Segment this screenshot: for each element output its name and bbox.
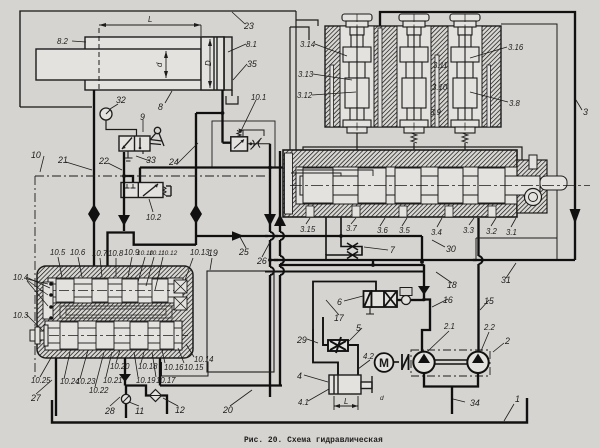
svg-text:3.2: 3.2 xyxy=(486,227,498,236)
svg-text:3.13: 3.13 xyxy=(298,70,314,79)
svg-text:10.17: 10.17 xyxy=(156,376,176,385)
svg-text:10.15: 10.15 xyxy=(184,363,204,372)
svg-text:12: 12 xyxy=(175,405,185,415)
svg-text:d: d xyxy=(155,62,164,67)
svg-text:D: D xyxy=(204,60,213,66)
svg-text:3.3: 3.3 xyxy=(463,226,475,235)
svg-text:3.6: 3.6 xyxy=(377,226,389,235)
svg-text:3.12: 3.12 xyxy=(297,91,313,100)
svg-text:3.11: 3.11 xyxy=(433,61,448,70)
svg-text:8.2: 8.2 xyxy=(57,37,69,46)
svg-text:3.5: 3.5 xyxy=(399,226,411,235)
svg-text:10.16: 10.16 xyxy=(164,363,184,372)
svg-text:10.3: 10.3 xyxy=(13,311,29,320)
svg-text:3.4: 3.4 xyxy=(431,228,443,237)
svg-text:23: 23 xyxy=(243,21,254,31)
svg-text:М: М xyxy=(379,356,389,370)
svg-text:28: 28 xyxy=(104,406,115,416)
svg-text:24: 24 xyxy=(168,157,179,167)
svg-text:21: 21 xyxy=(57,155,68,165)
svg-text:3.10: 3.10 xyxy=(432,83,448,92)
svg-text:Рис. 20. Схема гидравлическая: Рис. 20. Схема гидравлическая xyxy=(244,436,383,445)
svg-text:1: 1 xyxy=(515,394,520,404)
svg-text:4: 4 xyxy=(297,371,302,381)
svg-text:9: 9 xyxy=(140,112,145,122)
svg-text:8: 8 xyxy=(158,102,163,112)
svg-text:32: 32 xyxy=(116,95,126,105)
svg-text:20: 20 xyxy=(222,405,233,415)
svg-text:35: 35 xyxy=(247,59,257,69)
svg-text:10.22: 10.22 xyxy=(89,386,109,395)
svg-text:10.20: 10.20 xyxy=(110,362,130,371)
svg-text:10.21: 10.21 xyxy=(103,376,123,385)
svg-text:18: 18 xyxy=(447,280,457,290)
svg-text:L: L xyxy=(148,15,152,24)
svg-text:3.7: 3.7 xyxy=(346,224,358,233)
svg-text:10.2: 10.2 xyxy=(146,213,162,222)
svg-text:3.1: 3.1 xyxy=(506,228,517,237)
svg-text:2.2: 2.2 xyxy=(483,323,496,332)
svg-text:10.8: 10.8 xyxy=(108,249,124,258)
svg-text:L: L xyxy=(344,397,348,406)
svg-text:10: 10 xyxy=(31,150,41,160)
svg-text:10.12: 10.12 xyxy=(161,250,178,257)
svg-text:16: 16 xyxy=(443,295,453,305)
svg-text:3.9: 3.9 xyxy=(430,108,442,117)
svg-text:4.1: 4.1 xyxy=(298,398,309,407)
svg-text:31: 31 xyxy=(501,275,511,285)
svg-text:4.2: 4.2 xyxy=(363,352,375,361)
svg-text:27: 27 xyxy=(30,393,42,403)
svg-text:2: 2 xyxy=(504,336,510,346)
svg-text:3.15: 3.15 xyxy=(300,225,316,234)
svg-text:25: 25 xyxy=(238,247,249,257)
svg-text:8.1: 8.1 xyxy=(246,40,257,49)
svg-text:3.8: 3.8 xyxy=(509,99,521,108)
svg-text:29: 29 xyxy=(296,335,307,345)
svg-text:33: 33 xyxy=(146,155,156,165)
svg-text:d: d xyxy=(380,395,384,402)
svg-text:17: 17 xyxy=(334,313,345,323)
svg-text:11: 11 xyxy=(135,406,144,416)
svg-text:3.14: 3.14 xyxy=(300,40,316,49)
svg-text:10.5: 10.5 xyxy=(50,248,66,257)
svg-text:19: 19 xyxy=(208,248,218,258)
svg-text:10.14: 10.14 xyxy=(194,355,214,364)
svg-text:6: 6 xyxy=(337,297,342,307)
svg-text:10.23: 10.23 xyxy=(76,377,96,386)
svg-text:2.1: 2.1 xyxy=(443,322,455,331)
svg-text:10.1: 10.1 xyxy=(251,93,266,102)
svg-text:26: 26 xyxy=(256,256,267,266)
svg-text:10.7: 10.7 xyxy=(92,249,108,258)
svg-text:22: 22 xyxy=(98,156,109,166)
svg-text:10.6: 10.6 xyxy=(70,248,86,257)
svg-text:30: 30 xyxy=(446,244,456,254)
svg-text:3: 3 xyxy=(583,107,588,117)
svg-text:3.16: 3.16 xyxy=(508,43,524,52)
svg-text:34: 34 xyxy=(470,398,480,408)
svg-text:10.19: 10.19 xyxy=(136,376,156,385)
